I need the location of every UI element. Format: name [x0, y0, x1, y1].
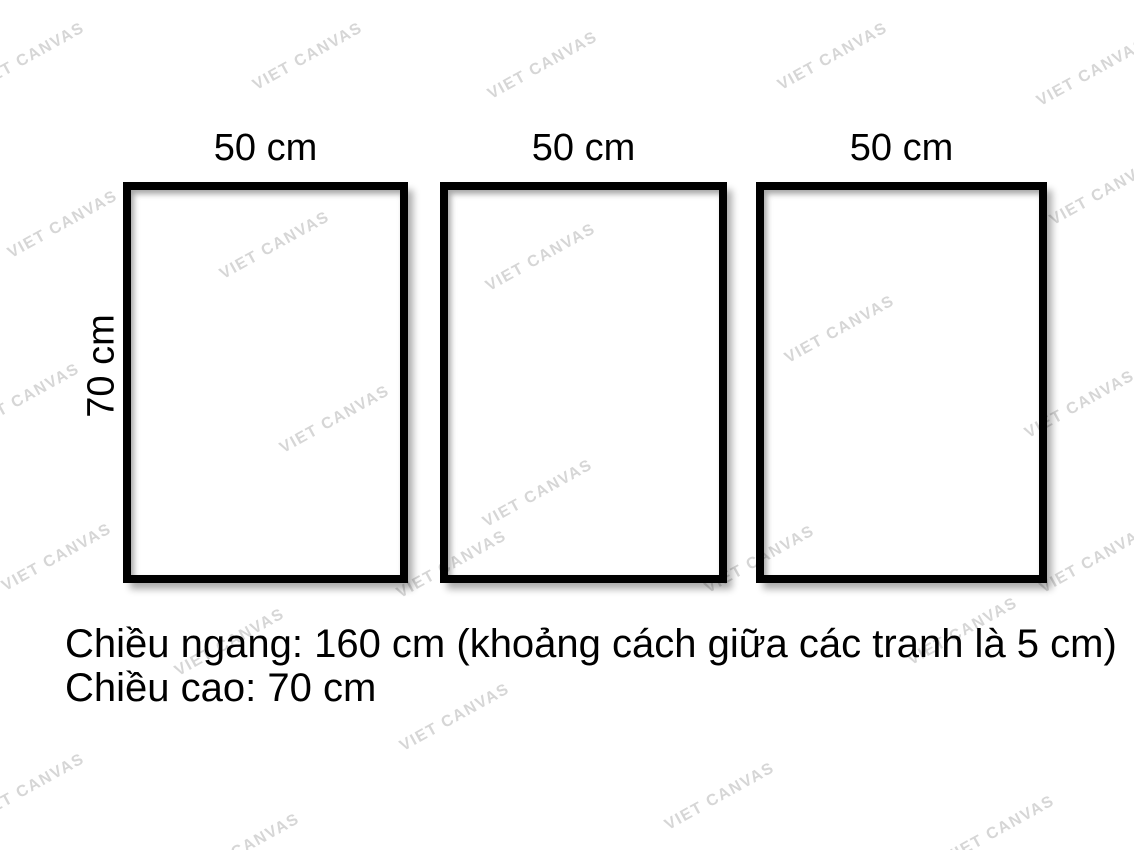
viet-canvas-watermark: VIET CANVAS — [1047, 154, 1134, 229]
frame-height-label: 70 cm — [81, 314, 124, 417]
frame-3-width-label: 50 cm — [756, 126, 1047, 170]
viet-canvas-watermark: VIET CANVAS — [0, 360, 83, 435]
viet-canvas-watermark: VIET CANVAS — [1037, 522, 1134, 597]
caption-line-vertical: Chiều cao: 70 cm — [65, 666, 1117, 710]
caption-line-horizontal: Chiều ngang: 160 cm (khoảng cách giữa cá… — [65, 622, 1117, 666]
caption: Chiều ngang: 160 cm (khoảng cách giữa cá… — [65, 622, 1117, 710]
viet-canvas-watermark: VIET CANVAS — [662, 759, 778, 834]
frame-2-width-label: 50 cm — [440, 126, 727, 170]
viet-canvas-watermark: VIET CANVAS — [187, 810, 303, 850]
frame-1 — [123, 182, 408, 583]
viet-canvas-watermark: VIET CANVAS — [5, 187, 121, 262]
viet-canvas-watermark: VIET CANVAS — [1034, 35, 1134, 110]
viet-canvas-watermark: VIET CANVAS — [250, 19, 366, 94]
viet-canvas-watermark: VIET CANVAS — [485, 28, 601, 103]
frame-1-width-label: 50 cm — [123, 126, 408, 170]
viet-canvas-watermark: VIET CANVAS — [0, 750, 88, 825]
viet-canvas-watermark: VIET CANVAS — [942, 792, 1058, 850]
frame-3 — [756, 182, 1047, 583]
frame-dimension-diagram: VIET CANVASVIET CANVASVIET CANVASVIET CA… — [0, 0, 1134, 850]
viet-canvas-watermark: VIET CANVAS — [0, 19, 88, 94]
viet-canvas-watermark: VIET CANVAS — [0, 520, 115, 595]
frame-2 — [440, 182, 727, 583]
viet-canvas-watermark: VIET CANVAS — [775, 19, 891, 94]
